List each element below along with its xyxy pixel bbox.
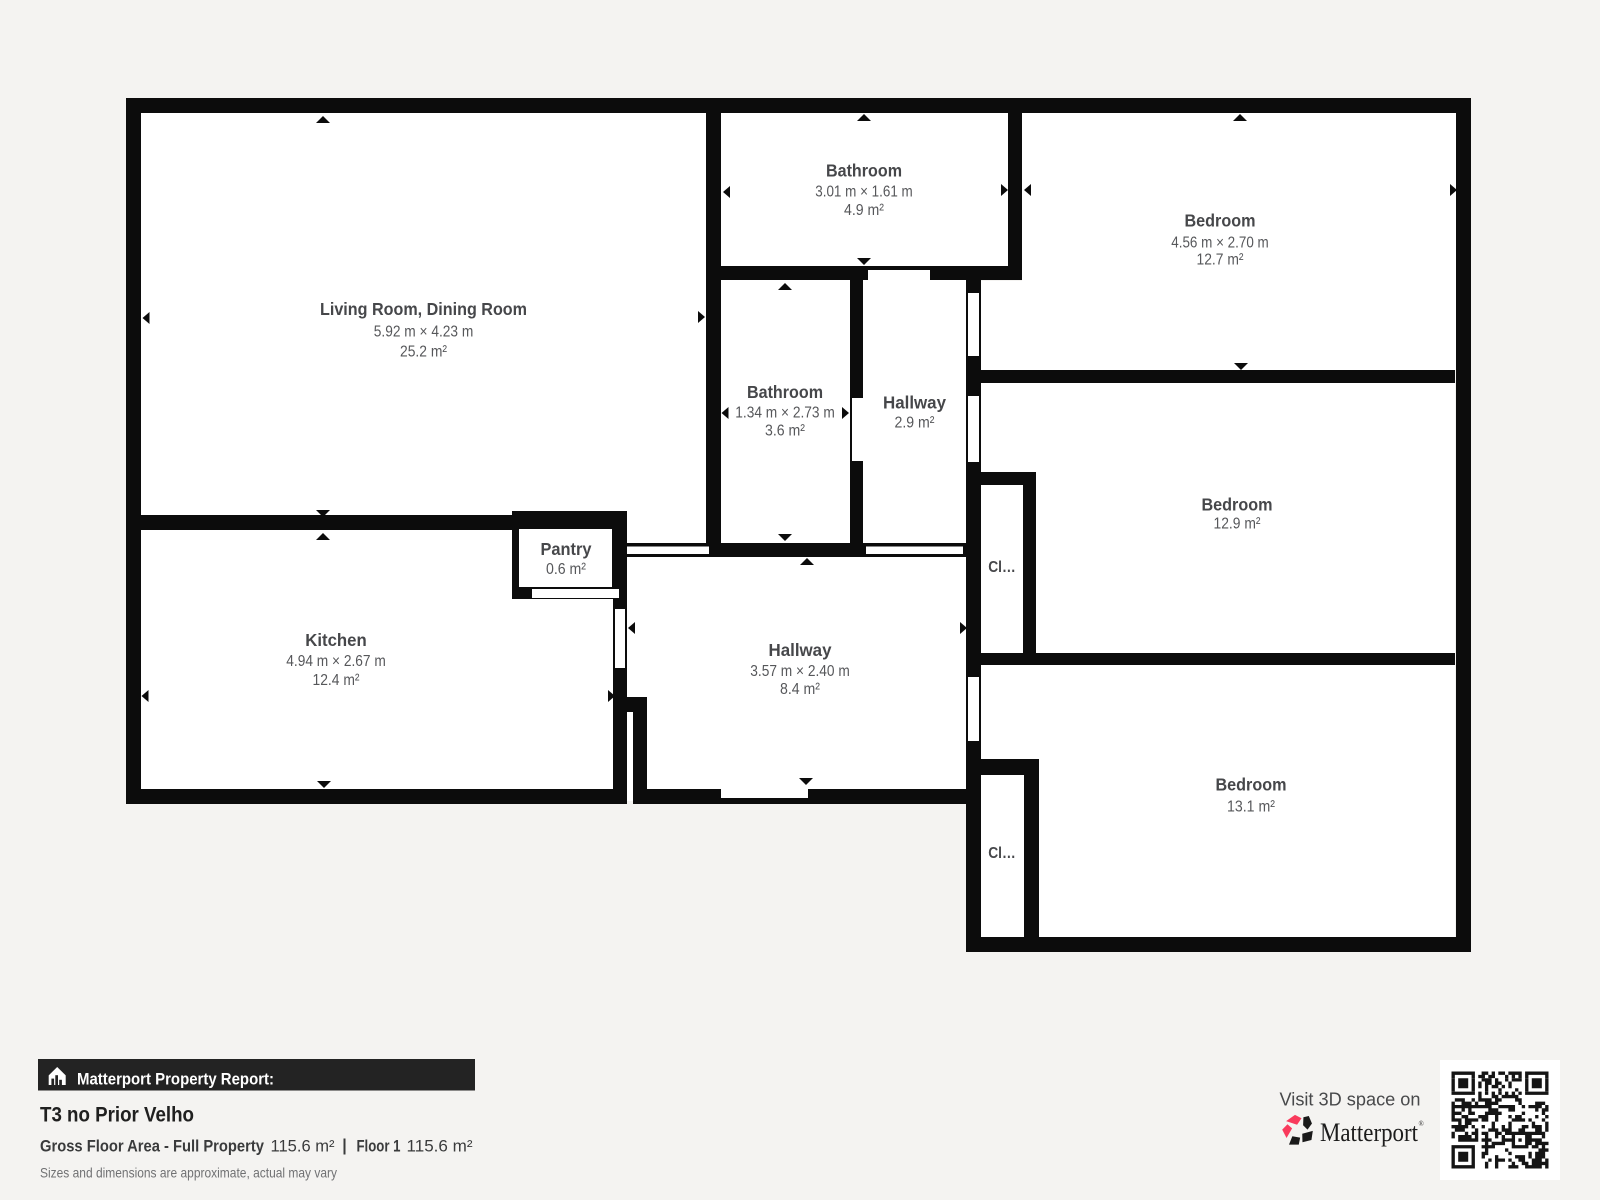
svg-text:Cl…: Cl… [988, 559, 1016, 576]
svg-text:T3 no Prior Velho: T3 no Prior Velho [40, 1102, 194, 1127]
svg-text:Hallway: Hallway [883, 393, 946, 413]
svg-text:4.94 m × 2.67 m: 4.94 m × 2.67 m [286, 653, 386, 670]
svg-text:1.34 m × 2.73 m: 1.34 m × 2.73 m [735, 405, 835, 422]
svg-text:Matterport Property Report:: Matterport Property Report: [77, 1071, 274, 1089]
svg-text:Gross Floor Area - Full Proper: Gross Floor Area - Full Property [40, 1137, 265, 1155]
svg-text:13.1 m²: 13.1 m² [1227, 799, 1276, 816]
svg-text:Living Room, Dining Room: Living Room, Dining Room [320, 299, 527, 319]
svg-text:115.6 m²: 115.6 m² [407, 1137, 474, 1155]
svg-text:12.9 m²: 12.9 m² [1214, 516, 1262, 533]
svg-text:Floor 1: Floor 1 [357, 1137, 401, 1155]
svg-text:3.57 m × 2.40 m: 3.57 m × 2.40 m [750, 663, 850, 680]
svg-text:Bathroom: Bathroom [826, 161, 902, 181]
svg-text:Cl…: Cl… [988, 845, 1016, 862]
svg-text:115.6 m²: 115.6 m² [271, 1137, 336, 1155]
svg-text:2.9 m²: 2.9 m² [895, 415, 936, 432]
svg-text:Matterport: Matterport [1320, 1117, 1419, 1147]
svg-text:Kitchen: Kitchen [305, 630, 367, 650]
svg-text:®: ® [1419, 1120, 1425, 1128]
svg-text:8.4 m²: 8.4 m² [780, 681, 821, 698]
svg-text:Bedroom: Bedroom [1185, 210, 1256, 230]
svg-text:12.4 m²: 12.4 m² [313, 672, 361, 689]
svg-text:12.7 m²: 12.7 m² [1197, 252, 1245, 269]
svg-text:0.6 m²: 0.6 m² [546, 561, 587, 578]
svg-text:Sizes and dimensions are appro: Sizes and dimensions are approximate, ac… [40, 1165, 337, 1181]
svg-text:25.2 m²: 25.2 m² [400, 344, 448, 361]
svg-text:Bathroom: Bathroom [747, 382, 823, 402]
svg-text:4.56 m × 2.70 m: 4.56 m × 2.70 m [1171, 235, 1269, 252]
svg-text:Pantry: Pantry [541, 539, 592, 559]
svg-text:Bedroom: Bedroom [1202, 495, 1273, 515]
svg-text:Hallway: Hallway [769, 640, 832, 660]
svg-text:Visit 3D space on: Visit 3D space on [1280, 1088, 1421, 1109]
svg-text:4.9 m²: 4.9 m² [844, 202, 885, 219]
svg-text:Bedroom: Bedroom [1216, 775, 1287, 795]
svg-text:3.01 m × 1.61 m: 3.01 m × 1.61 m [815, 183, 913, 200]
svg-text:5.92 m × 4.23 m: 5.92 m × 4.23 m [374, 324, 474, 341]
svg-text:3.6 m²: 3.6 m² [765, 423, 806, 440]
